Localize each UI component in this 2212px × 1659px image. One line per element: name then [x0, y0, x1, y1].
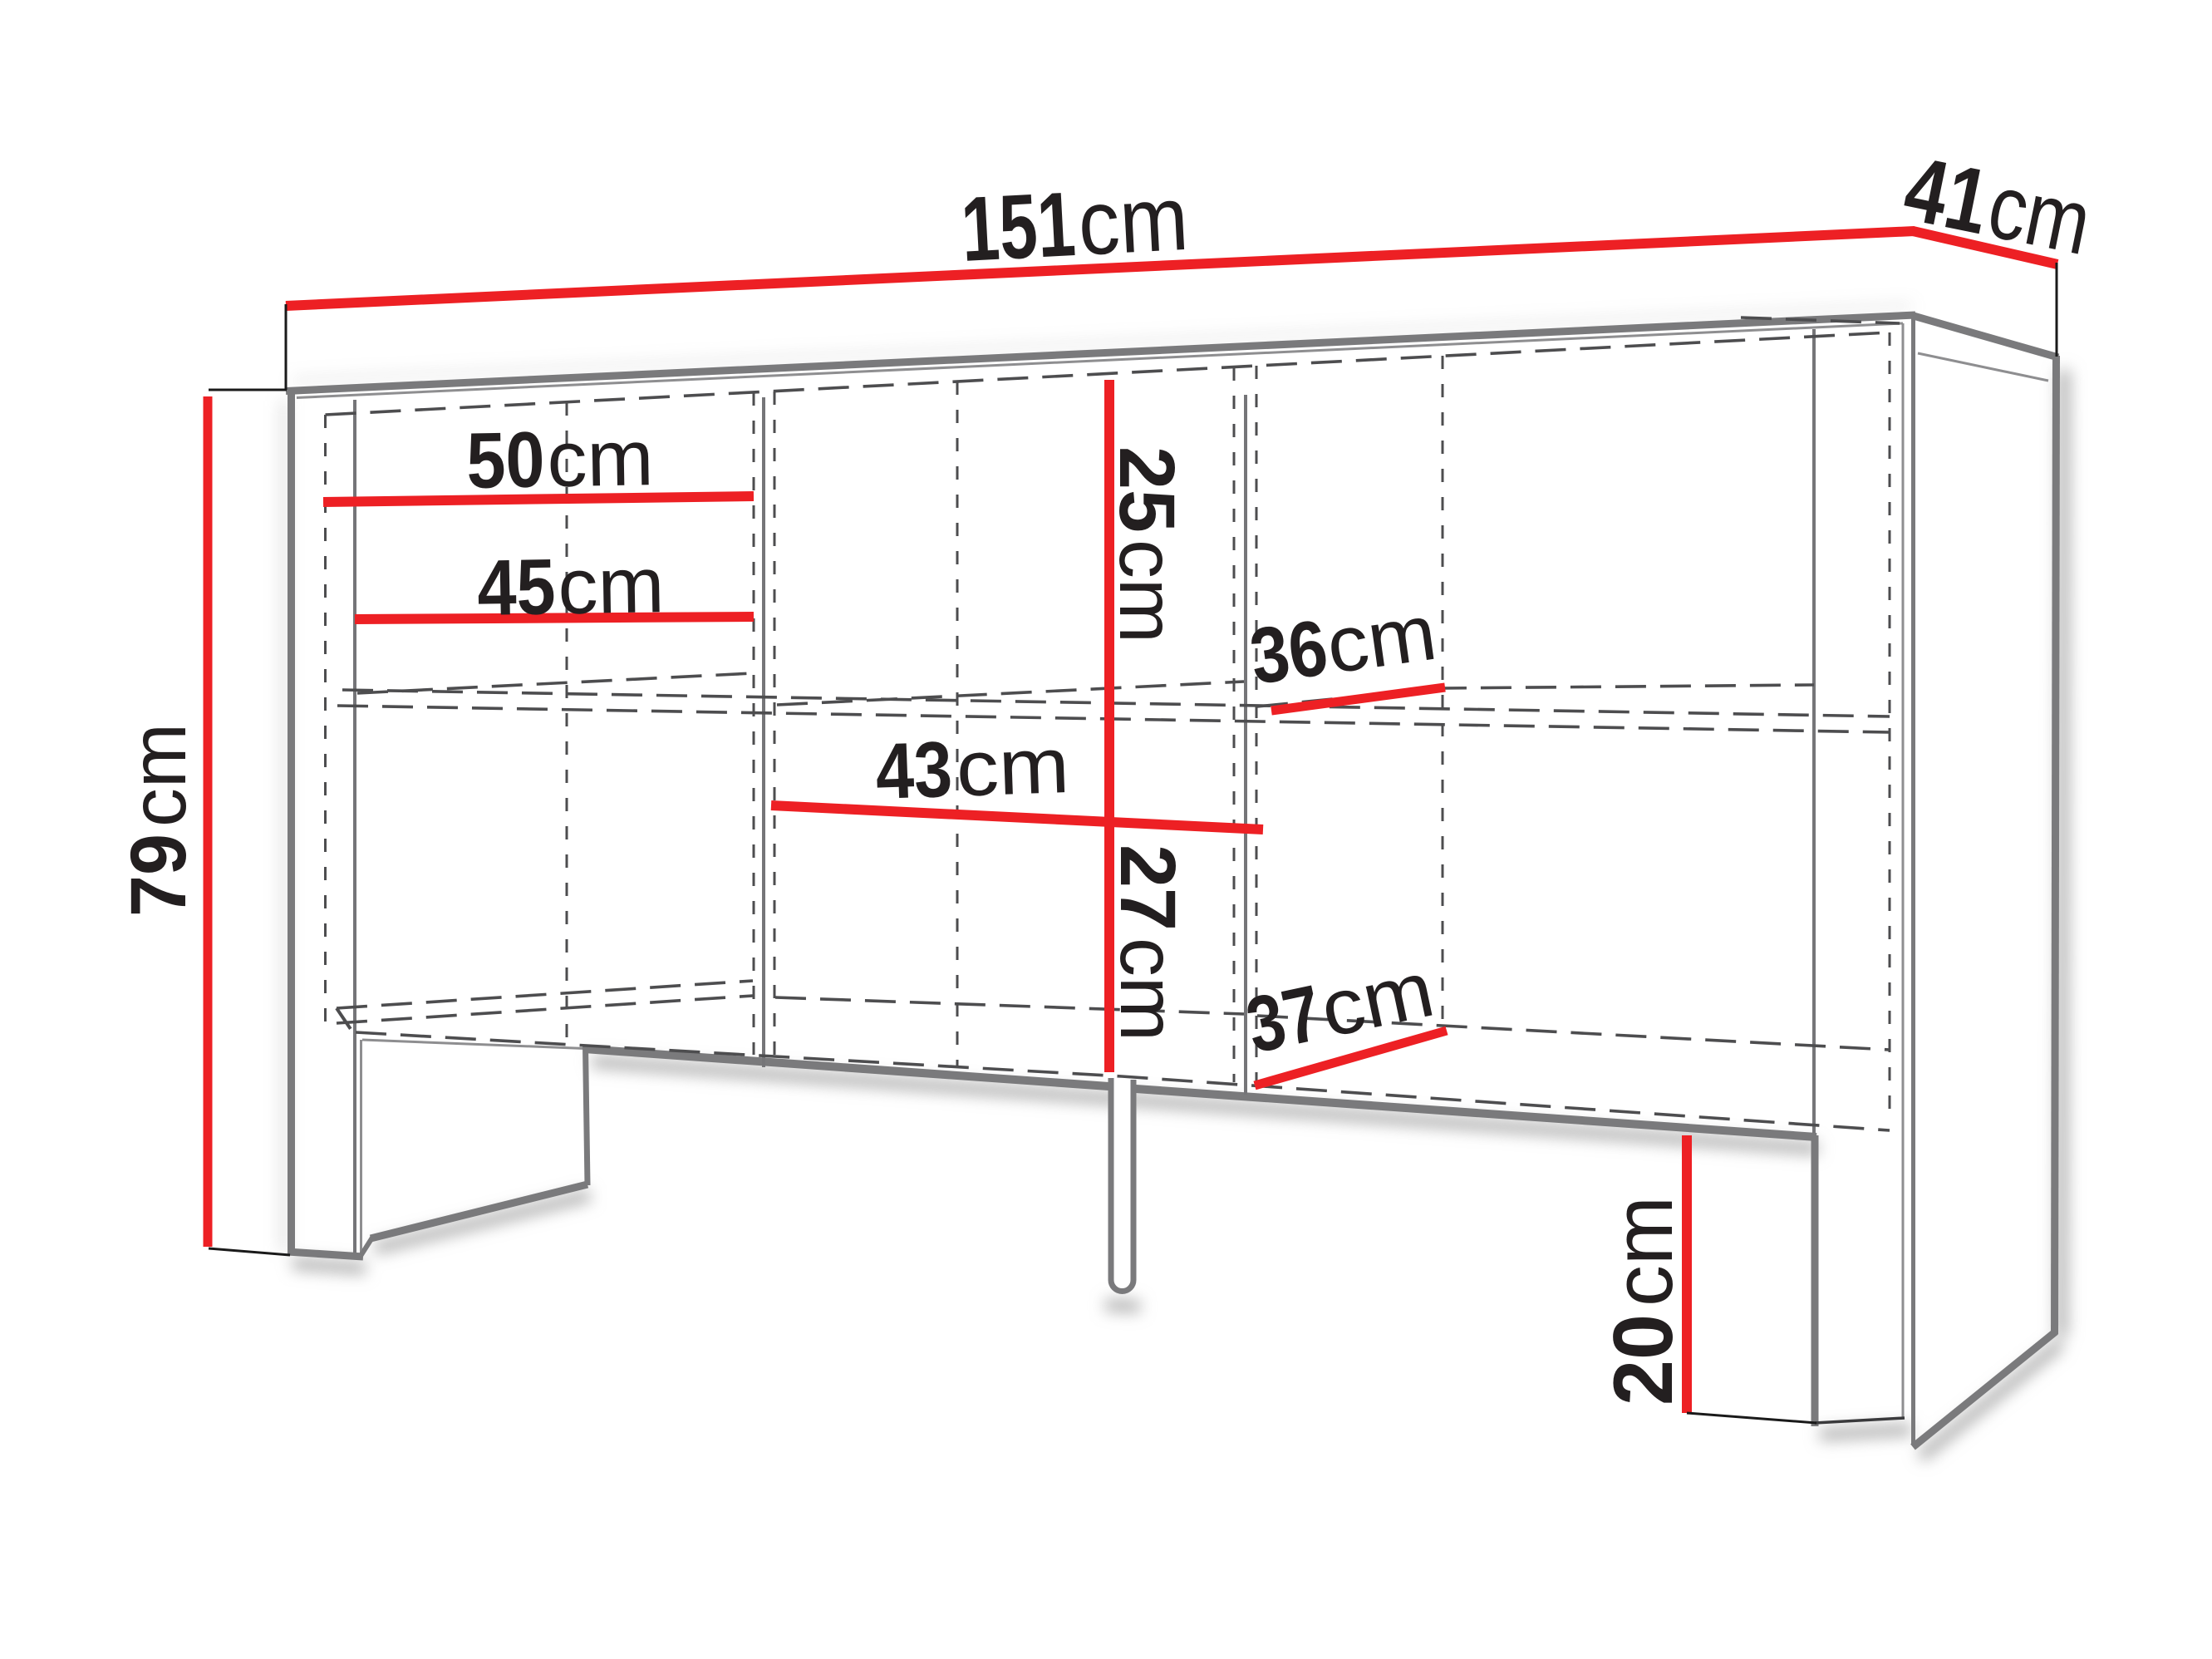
- svg-text:45: 45: [477, 543, 557, 633]
- svg-text:50: 50: [466, 416, 546, 505]
- svg-text:41: 41: [1896, 137, 1998, 254]
- svg-text:cm: cm: [1597, 1196, 1690, 1307]
- svg-text:cm: cm: [115, 723, 203, 827]
- svg-text:79: 79: [115, 834, 203, 917]
- svg-text:36: 36: [1245, 603, 1333, 702]
- svg-text:cm: cm: [547, 414, 655, 504]
- svg-text:cm: cm: [955, 721, 1071, 814]
- svg-text:37: 37: [1239, 969, 1329, 1071]
- svg-text:cm: cm: [1103, 539, 1191, 643]
- svg-text:151: 151: [959, 173, 1078, 281]
- svg-text:43: 43: [874, 726, 954, 816]
- svg-text:cm: cm: [1980, 155, 2099, 275]
- svg-text:20: 20: [1597, 1314, 1690, 1405]
- svg-text:cm: cm: [1321, 588, 1441, 691]
- svg-text:cm: cm: [558, 541, 666, 631]
- svg-text:cm: cm: [1104, 938, 1192, 1041]
- svg-text:27: 27: [1104, 844, 1192, 931]
- svg-text:25: 25: [1103, 446, 1191, 533]
- svg-text:cm: cm: [1076, 167, 1191, 275]
